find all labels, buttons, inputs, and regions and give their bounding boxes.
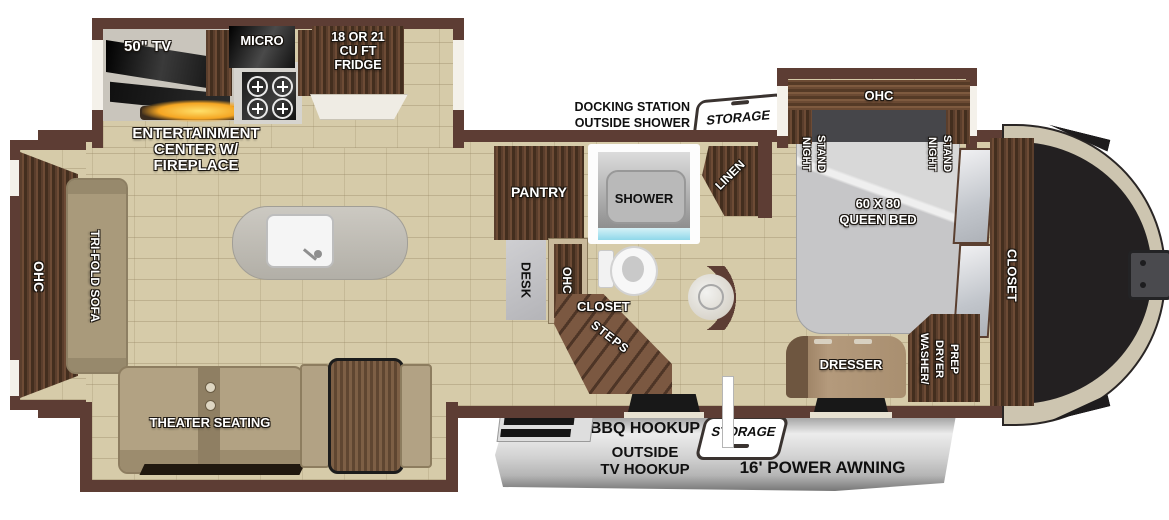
burner <box>272 76 293 97</box>
washer-line2: DRYER <box>931 318 946 400</box>
door-side-window-2-sill <box>810 412 892 418</box>
closet-mirror-door-top <box>953 148 996 244</box>
docking-line1: DOCKING STATION <box>548 99 690 115</box>
sofa-slide-window-bottom <box>10 360 19 396</box>
bed-line2: QUEEN BED <box>818 212 938 228</box>
vanity-sink <box>688 274 734 320</box>
kitchen-slide-window-right <box>453 40 464 110</box>
door-side-window-1 <box>628 394 700 412</box>
theater-front-mat <box>139 464 304 475</box>
docking-station-label: DOCKING STATION OUTSIDE SHOWER <box>548 99 690 131</box>
pantry-label: PANTRY <box>494 180 584 204</box>
shower-label: SHOWER <box>598 188 690 208</box>
bath-partition-wall <box>758 142 772 218</box>
washer-line1: WASHER/ <box>916 318 931 400</box>
bbq-hookup-label: BBQ HOOKUP <box>585 420 705 438</box>
trifold-sofa-label: TRI-FOLD SOFA <box>84 198 106 354</box>
storage-top-label: STORAGE <box>696 102 780 131</box>
burner <box>247 76 268 97</box>
hitch-bolt <box>1140 282 1146 288</box>
fridge-label: 18 OR 21 CU FT FRIDGE <box>312 30 404 72</box>
rv-floorplan: BBQ HOOKUP OUTSIDE TV HOOKUP 16' POWER A… <box>0 0 1169 520</box>
bed-line1: 60 X 80 <box>818 196 938 212</box>
ent-line1: ENTERTAINMENT <box>116 126 276 142</box>
outside-tv-line2: TV HOOKUP <box>585 461 705 478</box>
sofa-armrest <box>68 358 126 372</box>
ns-left-line2: STAND <box>813 112 828 196</box>
bedroom-ohc-label: OHC <box>788 82 970 108</box>
theater-seating-label: THEATER SEATING <box>128 415 292 430</box>
toilet <box>598 246 656 292</box>
step-tread <box>500 429 571 437</box>
cupholder <box>205 382 216 393</box>
hitch-pin <box>1128 250 1169 300</box>
step-tread <box>504 417 575 425</box>
microwave-label: MICRO <box>229 30 295 50</box>
queen-bed-label: 60 X 80 QUEEN BED <box>818 196 938 228</box>
hitch-bolt <box>1140 260 1146 266</box>
washer-dryer-label: WASHER/ DRYER PREP <box>916 318 974 400</box>
storage-compartment-bottom: STORAGE <box>695 416 790 460</box>
island-sink <box>266 214 334 268</box>
cooktop <box>242 72 296 120</box>
outside-tv-hookup-label: OUTSIDE TV HOOKUP <box>585 444 705 478</box>
fridge-line1: 18 OR 21 <box>312 30 404 44</box>
fridge-line2: CU FT <box>312 44 404 58</box>
dresser-handle <box>854 339 872 344</box>
dresser-label: DRESSER <box>796 354 906 374</box>
storage-bottom-label: STORAGE <box>702 419 786 443</box>
sofa-armrest <box>68 180 126 194</box>
sofa-slide-window-top <box>10 160 19 196</box>
desk-label: DESK <box>514 246 538 314</box>
ns-right-line2: STAND <box>939 112 954 196</box>
ns-left-line1: NIGHT <box>798 112 813 196</box>
docking-line2: OUTSIDE SHOWER <box>548 115 690 131</box>
toilet-seat <box>622 256 644 282</box>
burner <box>247 98 268 119</box>
dinette-table <box>328 358 404 474</box>
nightstand-right-label: NIGHT STAND <box>924 112 958 196</box>
washer-line3: PREP <box>946 318 961 400</box>
dinette-bench-right <box>400 364 432 468</box>
shower-threshold <box>598 228 690 240</box>
front-closet-label: CLOSET <box>1000 230 1024 320</box>
dinette-bench-left <box>300 364 330 468</box>
fridge-counter <box>306 94 408 120</box>
tv-label: 50" TV <box>124 38 171 55</box>
sink-basin <box>698 284 724 310</box>
door-side-window-1-sill <box>624 412 704 418</box>
bedroom-slide-window-left <box>777 86 788 136</box>
burner <box>272 98 293 119</box>
ns-right-line1: NIGHT <box>924 112 939 196</box>
ent-line3: FIREPLACE <box>116 158 276 174</box>
outside-tv-line1: OUTSIDE <box>585 444 705 461</box>
cupholder <box>205 400 216 411</box>
ohc-left-label: OHC <box>28 240 50 314</box>
entertainment-center-label: ENTERTAINMENT CENTER W/ FIREPLACE <box>116 126 276 174</box>
hall-closet-label: CLOSET <box>577 299 630 314</box>
power-awning-label: 16' POWER AWNING <box>735 458 910 478</box>
kitchen-slide-window-left <box>92 40 103 110</box>
nightstand-left-label: NIGHT STAND <box>798 112 832 196</box>
fridge-line3: FRIDGE <box>312 58 404 72</box>
ent-line2: CENTER W/ <box>116 142 276 158</box>
dresser-handle <box>814 339 832 344</box>
entry-door <box>722 376 734 448</box>
